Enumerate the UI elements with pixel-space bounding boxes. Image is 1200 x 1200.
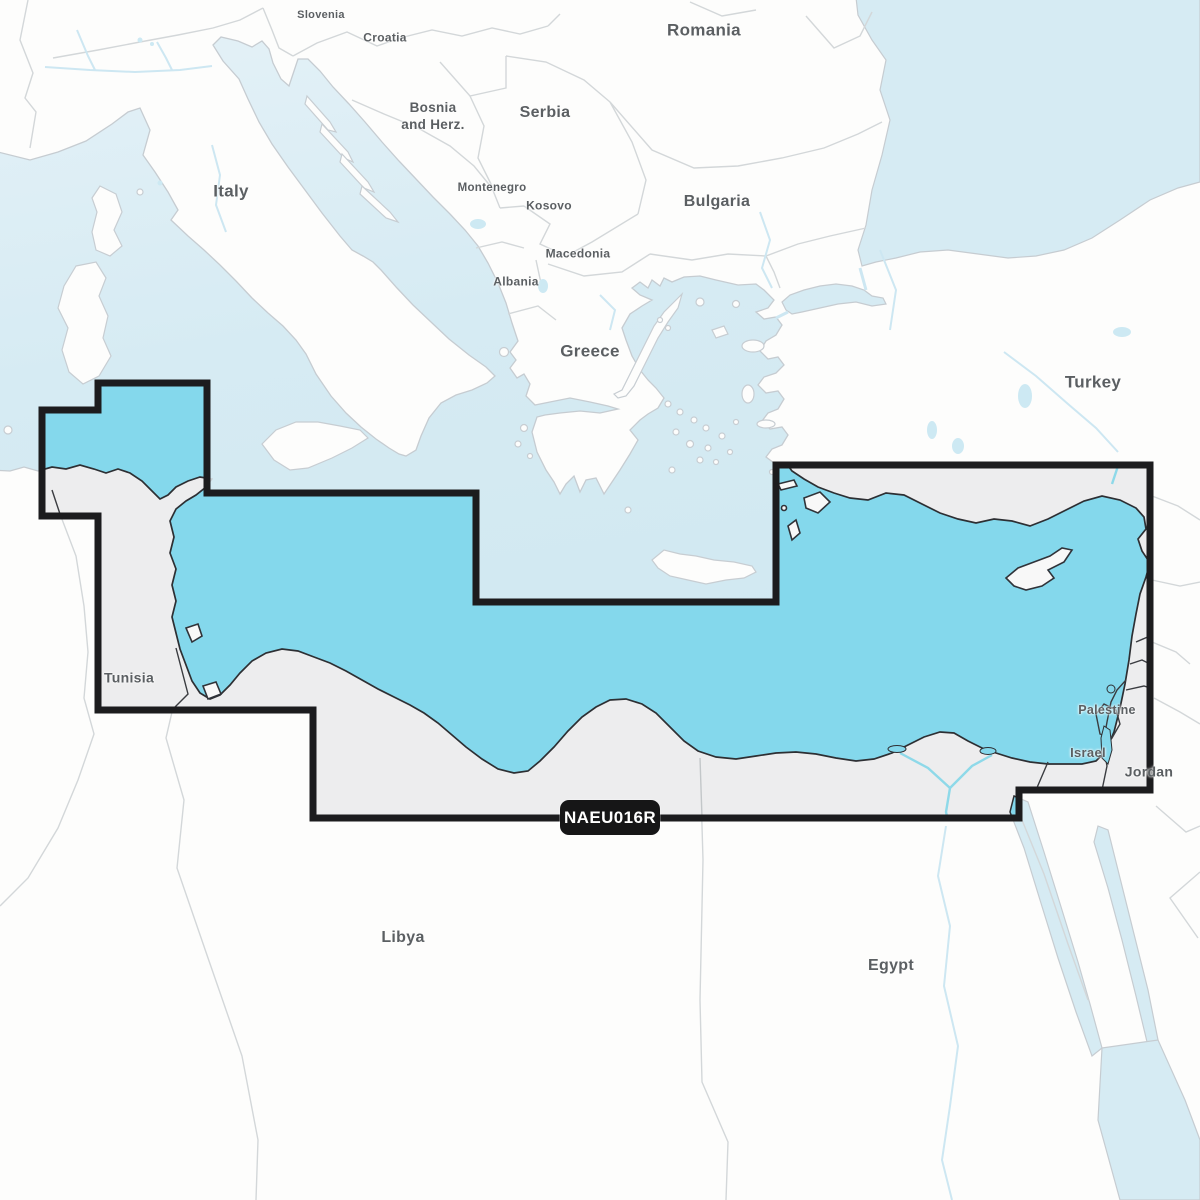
map-canvas [0, 0, 1200, 1200]
chart-coverage-map: Slovenia Croatia Bosnia and Herz. Serbia… [0, 0, 1200, 1200]
chart-code-badge[interactable]: NAEU016R [560, 800, 660, 835]
